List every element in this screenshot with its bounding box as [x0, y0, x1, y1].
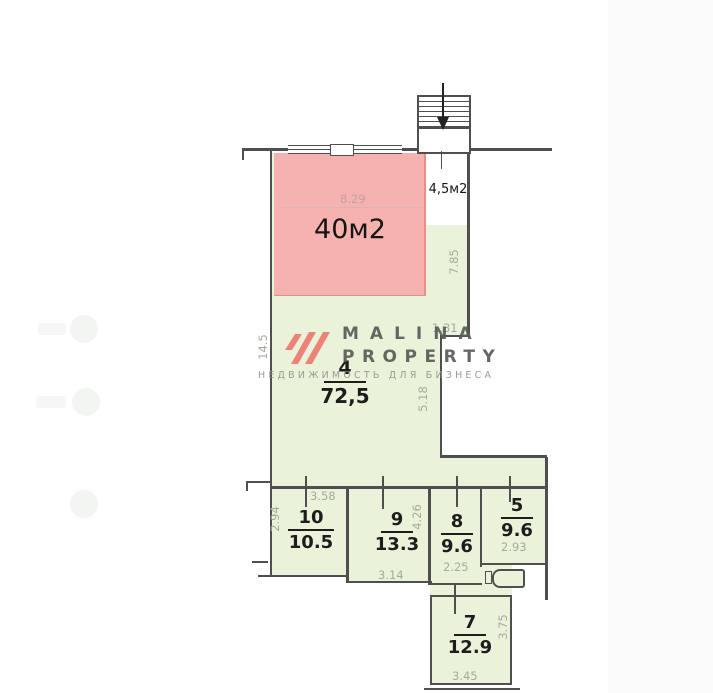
door-mark-room9: [382, 476, 384, 509]
wall-top-left-tick: [242, 148, 244, 160]
room-number: 8: [441, 512, 474, 535]
wall-room10-bottom: [258, 575, 348, 577]
logo-line2: PROPERTY: [342, 347, 502, 367]
room-5-label: 5 9.6: [477, 496, 557, 541]
wall-stub-upper-tick: [246, 481, 248, 491]
room-10-label: 10 10.5: [271, 508, 351, 553]
room-number: 9: [381, 510, 414, 533]
bathtub-icon: [492, 569, 525, 588]
logo-m-icon: [283, 322, 341, 364]
wall-room7-bottom: [430, 683, 512, 685]
wall-mid-horizontal: [440, 455, 547, 458]
dimension-label: 7.85: [447, 249, 461, 275]
watermark-blob: [70, 490, 98, 518]
room-number: 10: [288, 508, 333, 531]
floor-plan: 40м2 4,5м2 8.29 7.85 1.31 5.18 14.5 2.94…: [0, 0, 713, 693]
annex-area-label: 4,5м2: [424, 182, 472, 197]
corridor-area: [272, 455, 545, 488]
highlight-area-label: 40м2: [300, 214, 400, 245]
wall-room5-bottom: [480, 563, 547, 565]
window-icon: [352, 145, 402, 154]
watermark-blob: [72, 388, 100, 416]
logo-tagline: НЕДВИЖИМОСТЬ ДЛЯ БИЗНЕСА: [258, 370, 494, 381]
room-number: 7: [454, 613, 487, 636]
dimension-label: 3.14: [378, 568, 404, 582]
logo: MALINA PROPERTY НЕДВИЖИМОСТЬ ДЛЯ БИЗНЕСА: [255, 318, 505, 384]
wall-right-upper: [467, 150, 470, 337]
room-7-label: 7 12.9: [430, 613, 510, 658]
dimension-label: 2.93: [501, 540, 527, 554]
room-area: 12.9: [430, 636, 510, 659]
watermark-blob: [38, 323, 66, 335]
window-mullion: [330, 144, 354, 156]
watermark-blob: [36, 396, 66, 408]
dimension-label: 2.25: [443, 560, 469, 574]
dimension-label: 8.29: [340, 192, 366, 206]
logo-line1: MALINA: [342, 324, 483, 344]
door-mark-room8: [456, 476, 458, 507]
stairs-guide-line: [441, 151, 442, 169]
wall-room7-outer-bottom: [424, 688, 520, 690]
room-area: 10.5: [271, 531, 351, 554]
dimension-label: 3.58: [310, 489, 336, 503]
dimension-line: [282, 207, 422, 208]
room-area: 9.6: [477, 519, 557, 542]
wall-room7-right: [510, 595, 512, 685]
background-band: [608, 0, 713, 693]
stairs-down-arrow-icon: [434, 83, 452, 133]
dimension-label: 5.18: [416, 386, 430, 412]
watermark-blob: [70, 315, 98, 343]
wall-stub-lower: [252, 561, 268, 563]
dimension-label: 3.45: [452, 669, 478, 683]
door-mark-room10: [305, 476, 307, 507]
room-area: 72,5: [305, 383, 385, 408]
wall-room7-top: [430, 595, 512, 597]
door-mark-room7: [454, 584, 456, 614]
wall-stub-upper: [246, 481, 272, 483]
sink-icon: [485, 571, 492, 584]
room-number: 5: [501, 496, 534, 519]
window-icon: [288, 145, 333, 154]
